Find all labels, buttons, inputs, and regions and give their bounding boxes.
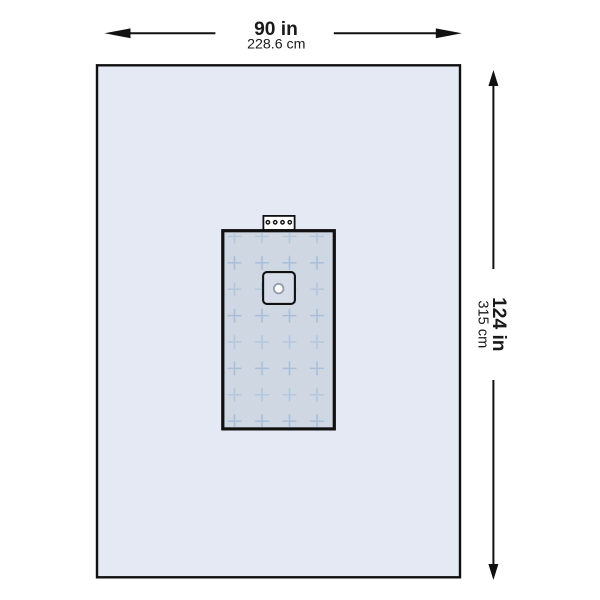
svg-text:315 cm: 315 cm — [475, 300, 491, 348]
svg-text:228.6 cm: 228.6 cm — [247, 36, 305, 52]
